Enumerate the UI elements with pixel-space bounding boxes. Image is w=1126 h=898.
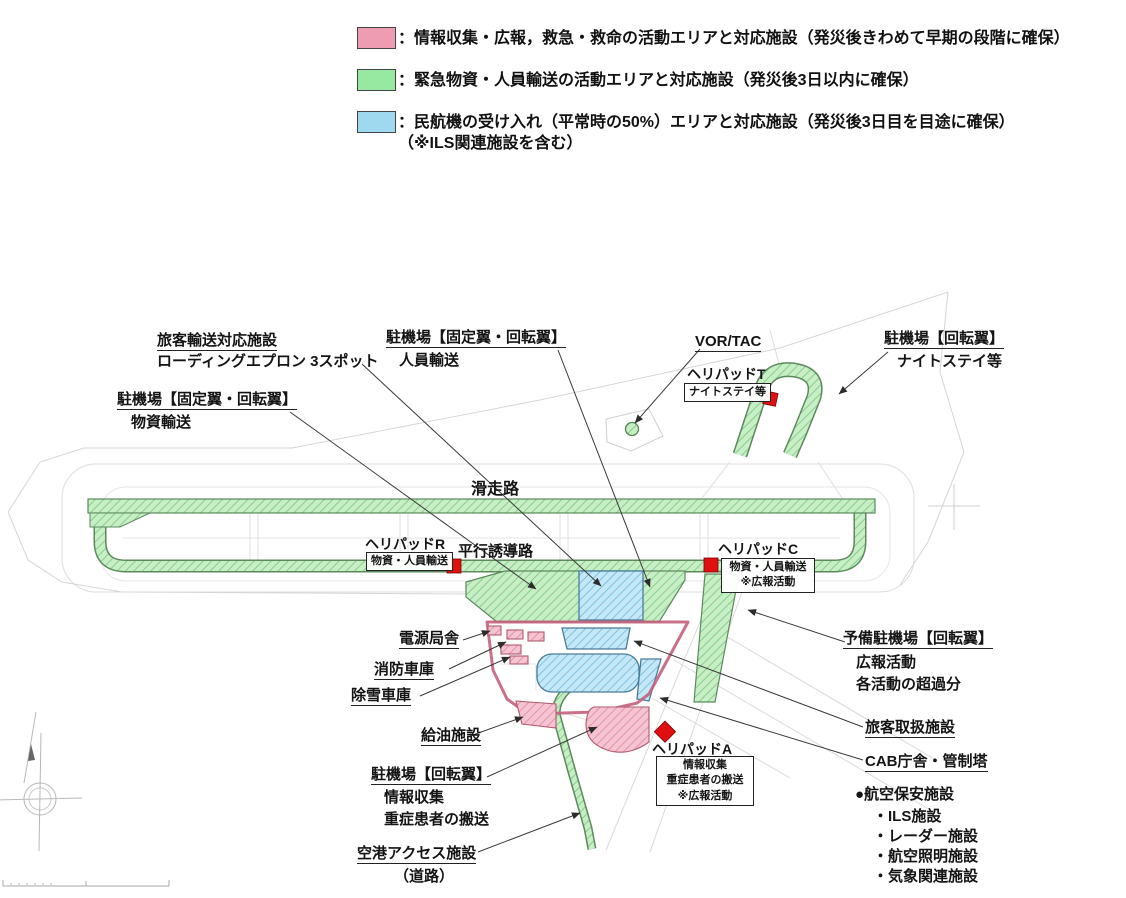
- label-helipad-a: ヘリパッドA: [652, 741, 732, 757]
- label-apron-rotary-night-1: 駐機場【回転翼】: [884, 330, 1004, 349]
- runway-band: [88, 499, 875, 513]
- label-helipad-c: ヘリパッドC: [718, 541, 798, 557]
- label-apron-fixed-busshi-1: 駐機場【固定翼・回転翼】: [117, 391, 297, 410]
- note-helipad-r: 物資・人員輸送: [366, 552, 453, 571]
- power-station-building: [488, 626, 501, 635]
- terminal-apron: [537, 654, 639, 692]
- legend-label-blue: ：民航機の受け入れ（平常時の50%）エリアと対応施設（発災後3日目を目途に確保）: [398, 113, 1015, 133]
- note-helipad-t: ナイトステイ等: [684, 383, 771, 402]
- legend-label-pink: ：情報収集・広報，救急・救命の活動エリアと対応施設（発災後きわめて早期の段階に確…: [398, 29, 1070, 49]
- rotary-apron-area: [586, 707, 649, 752]
- note-helipad-c-line2: ※広報活動: [726, 575, 810, 590]
- snow-removal-building: [510, 656, 528, 664]
- label-vortac: VOR/TAC: [695, 333, 761, 352]
- label-reserve-apron-1: 予備駐機場【回転翼】: [843, 630, 993, 649]
- label-apron-rotary-night-2: ナイトステイ等: [897, 353, 1002, 370]
- label-reserve-apron-2: 広報活動: [856, 654, 916, 671]
- small-building-2: [507, 630, 523, 639]
- legend-label-green: ：緊急物資・人員輸送の活動エリアと対応施設（発災後3日以内に確保）: [398, 71, 919, 91]
- vortac-site: [626, 423, 639, 436]
- note-helipad-a-line3: ※広報活動: [661, 789, 749, 804]
- runway-turnpad: [90, 513, 150, 527]
- civil-apron-rect: [579, 571, 643, 620]
- label-power-station: 電源局舎: [399, 630, 459, 649]
- label-passenger-loading-1: 旅客輸送対応施設: [157, 332, 277, 351]
- label-helipad-r: ヘリパッドR: [365, 536, 445, 552]
- terminal-building: [562, 628, 630, 649]
- label-access-road-2: （道路）: [394, 868, 454, 885]
- scale-bar: [3, 880, 169, 886]
- label-rotary-apron-1: 駐機場【回転翼】: [371, 766, 491, 785]
- label-reserve-apron-3: 各活動の超過分: [856, 676, 961, 693]
- legend-swatch-pink: [357, 27, 396, 49]
- cargo-apron-area: [466, 571, 685, 622]
- compass-rose: [0, 712, 82, 851]
- helipad-c-marker: [704, 558, 718, 572]
- label-apron-fixed-busshi-2: 物資輸送: [131, 414, 191, 431]
- note-helipad-c-line1: 物資・人員輸送: [726, 560, 810, 575]
- label-apron-fixed-jinin-1: 駐機場【固定翼・回転翼】: [386, 329, 566, 348]
- fuel-facility-area: [516, 701, 556, 728]
- small-building-3: [528, 632, 544, 641]
- label-passenger-handling: 旅客取扱施設: [865, 719, 955, 738]
- label-rotary-apron-3: 重症患者の搬送: [384, 811, 489, 828]
- legend-label-blue-note: （※ILS関連施設を含む）: [398, 134, 582, 154]
- label-security-lighting: ・航空照明施設: [873, 848, 978, 865]
- label-security-radar: ・レーダー施設: [873, 828, 978, 845]
- note-helipad-c: 物資・人員輸送 ※広報活動: [721, 558, 815, 593]
- label-fuel-facility: 給油施設: [421, 727, 481, 746]
- diagonal-taxiway-band: [694, 574, 739, 702]
- note-helipad-a-line2: 重症患者の搬送: [661, 773, 749, 788]
- legend-swatch-blue: [357, 111, 396, 133]
- label-cab-tower: CAB庁舎・管制塔: [865, 753, 988, 772]
- label-access-road-1: 空港アクセス施設: [357, 845, 476, 864]
- label-helipad-t: ヘリパッドT: [687, 366, 766, 382]
- label-runway: 滑走路: [471, 481, 519, 499]
- label-apron-fixed-jinin-2: 人員輸送: [399, 352, 459, 369]
- label-fire-station: 消防車庫: [374, 661, 434, 680]
- airport-disaster-plan-diagram: ：情報収集・広報，救急・救命の活動エリアと対応施設（発災後きわめて早期の段階に確…: [0, 0, 1126, 898]
- legend-swatch-green: [357, 69, 396, 91]
- note-helipad-a-line1: 情報収集: [661, 758, 749, 773]
- label-security-ils: ・ILS施設: [873, 808, 941, 825]
- label-snow-removal: 除雪車庫: [351, 687, 411, 706]
- note-helipad-a: 情報収集 重症患者の搬送 ※広報活動: [656, 756, 754, 806]
- label-rotary-apron-2: 情報収集: [384, 789, 444, 806]
- label-taxiway: 平行誘導路: [458, 543, 533, 560]
- label-security-weather: ・気象関連施設: [873, 868, 978, 885]
- label-passenger-loading-2: ローディングエプロン 3スポット: [157, 353, 378, 370]
- label-security-title: ●航空保安施設: [855, 786, 954, 803]
- fire-station-building: [501, 645, 521, 654]
